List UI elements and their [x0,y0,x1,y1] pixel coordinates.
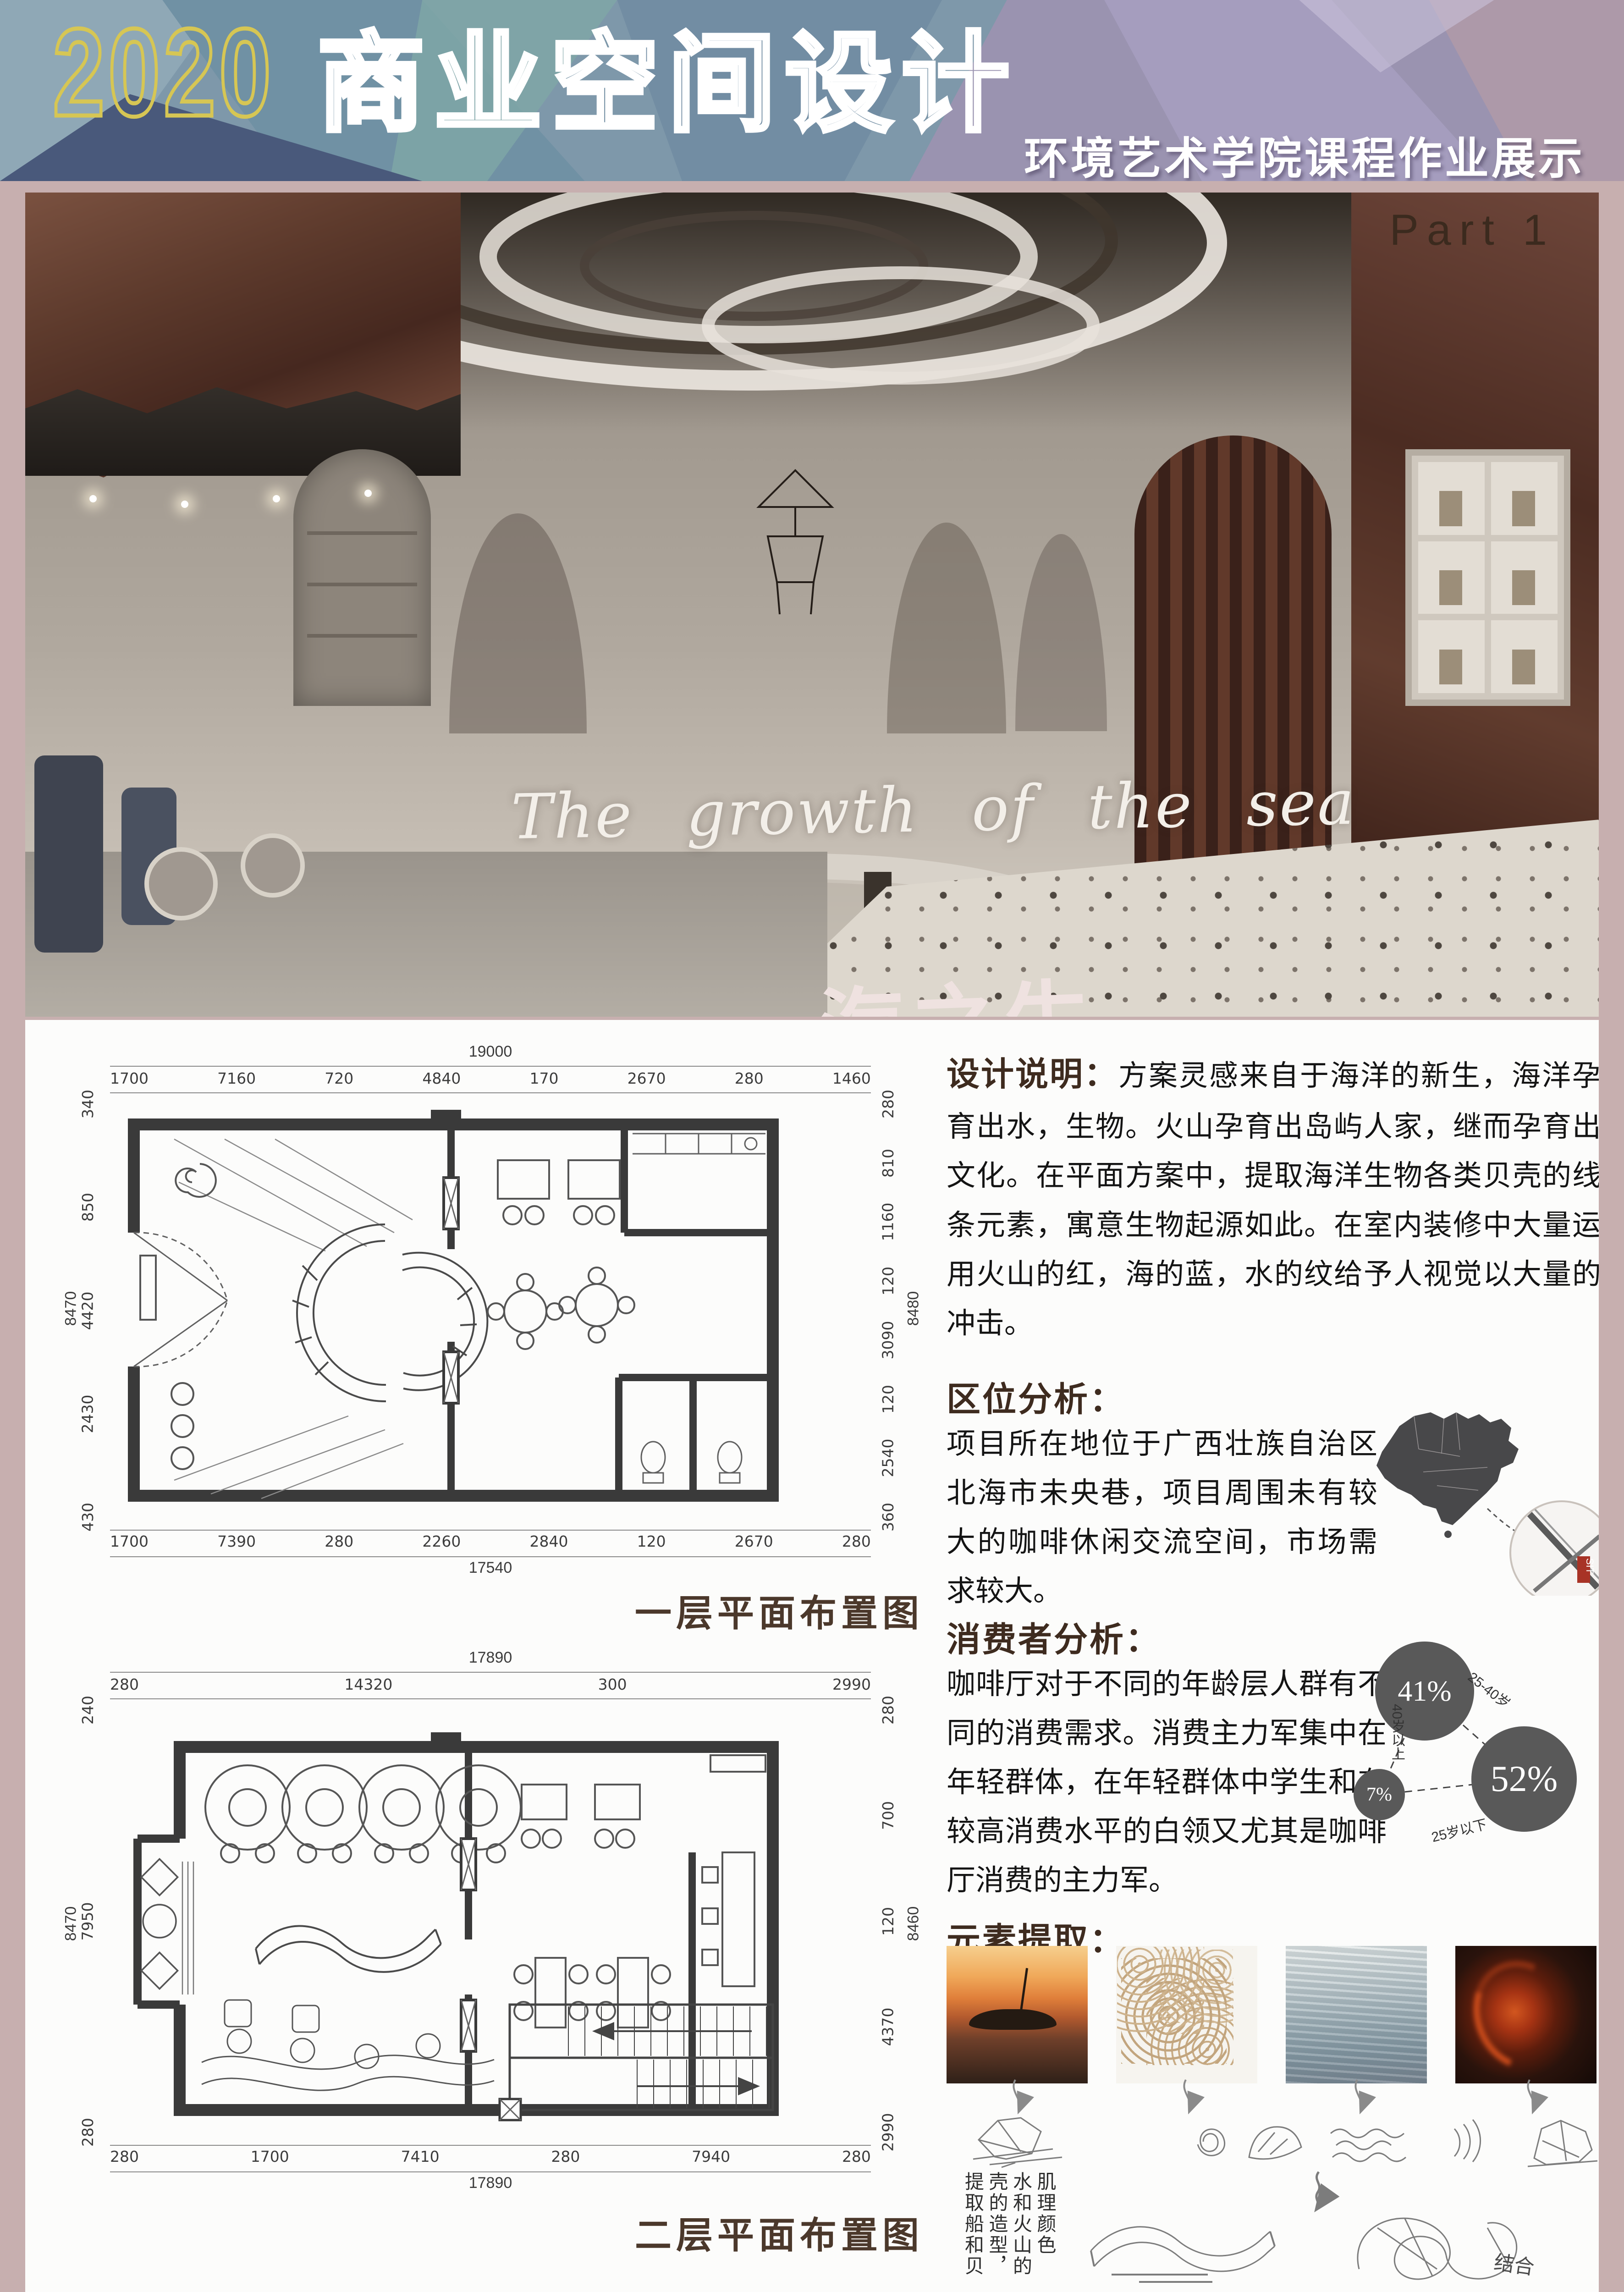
shell-spiral-sketch [1198,2129,1225,2156]
dimension-line [110,1066,871,1067]
design-description: 设计说明：方案灵感来自于海洋的新生，海洋孕育出水，生物。火山孕育出岛屿人家，继而… [947,1047,1599,1348]
wireframe-pendant-light [740,468,850,619]
consumer-analysis-title: 消费者分析： [947,1612,1161,1661]
dimension-value: 280 [735,1069,764,1087]
part-label: Part 1 [1390,205,1555,255]
cafe-table [144,847,218,920]
dimension-value: 280 [79,2118,97,2147]
dimension-total: 8470 [62,1906,80,1941]
dimension-total: 17540 [110,1559,871,1577]
dimension-value: 7950 [79,1902,97,1940]
bubble-under-25: 52% [1471,1726,1577,1832]
location-analysis-body: 项目所在地位于广西壮族自治区北海市未央巷，项目周围未有较大的咖啡休闲交流空间，市… [947,1420,1377,1616]
dimension-value: 240 [79,1696,97,1725]
dimension-value: 120 [879,1385,897,1414]
dimension-value: 280 [110,2148,139,2165]
dimension-line [110,1556,871,1557]
floor-plan-1: 19000 17007160720484017026702801460 3408… [66,1043,928,1634]
spotlight [89,495,97,502]
dimension-column: 28070012043702990 [878,1701,898,2141]
dimension-total: 8480 [905,1291,923,1326]
dimension-value: 1460 [832,1069,871,1087]
hero-render: Part 1 The growth of the sea 海之生— 新生主题咖啡… [25,193,1599,1017]
floor-plan-2-label: 二层平面布置图 [635,2206,924,2259]
dimension-row: 17007160720484017026702801460 [110,1069,871,1087]
dimension-total: 19000 [110,1043,871,1061]
floor-plan-1-drawing [110,1095,871,1526]
wall-niche-shelves [293,449,431,706]
consumer-bubble-chart: 41% 52% 7% 25-40岁 40岁以上 25岁以下 [1341,1614,1599,1875]
dimension-value: 3090 [879,1321,897,1359]
shelf-cell [1491,541,1558,614]
waves-sketch [1331,2129,1406,2161]
dimension-line [110,2171,871,2172]
dimension-total: 17890 [110,2174,871,2192]
dimension-value: 7390 [217,1532,256,1550]
dimension-value: 120 [879,1907,897,1936]
dimension-value: 280 [842,1532,871,1550]
wave-counter-sketch [1091,2227,1270,2256]
sunset-fishing-boat-photo [947,1946,1088,2083]
dimension-value: 720 [325,1069,353,1087]
dimension-value: 340 [79,1090,97,1118]
dimension-total: 8460 [905,1906,923,1941]
floor-plan-2-drawing [110,1701,871,2141]
dimension-line [110,1092,871,1093]
dimension-value: 7410 [401,2148,440,2165]
location-analysis-title: 区位分析： [947,1372,1125,1421]
dimension-line [110,2145,871,2146]
header-band: 2020 商业空间设计 环境艺术学院课程作业展示 [0,0,1624,181]
arch-opening [887,523,1006,733]
dimension-value: 810 [879,1149,897,1178]
dimension-value: 850 [79,1193,97,1222]
s-counter-sketch [1358,2218,1450,2279]
dimension-value: 1700 [110,1532,149,1550]
site-tag-text: SIT [1584,1558,1596,1574]
dimension-value: 430 [79,1503,97,1532]
dimension-row: 17007390280226028401202670280 [110,1532,871,1550]
dimension-value: 280 [325,1532,353,1550]
dimension-value: 14320 [344,1675,392,1693]
main-title: 商业空间设计 [317,22,1018,146]
dimension-value: 280 [879,1696,897,1725]
cafe-table [241,833,305,898]
dimension-value: 1700 [251,2148,289,2165]
sketch-annotation: 提取船和贝壳的造型，水和火山的肌理颜色 [960,2171,1057,2288]
dimension-value: 280 [879,1090,897,1118]
extraction-arrows [947,2078,1599,2115]
dimension-total: 8470 [62,1291,80,1326]
shelf-cell [1491,620,1558,693]
design-description-body: 方案灵感来自于海洋的新生，海洋孕育出水，生物。火山孕育出岛屿人家，继而孕育出文化… [947,1060,1599,1339]
dimension-value: 2670 [628,1069,666,1087]
combine-arrow [1316,2172,1320,2209]
year-title: 2020 [53,10,275,135]
china-map: SIT [1350,1399,1599,1596]
arch-opening [1015,534,1107,731]
dimension-value: 360 [879,1503,897,1532]
arch-opening [449,513,587,733]
dimension-line [110,1698,871,1699]
shelf-cell [1491,462,1558,535]
floor-plan-1-label: 一层平面布置图 [635,1584,924,1637]
dimension-column: 34085044202430430 [77,1095,98,1526]
bubble-over-40: 7% [1354,1769,1405,1820]
combine-note: 结合 [1492,2246,1536,2281]
seashells-photo [1116,1946,1257,2083]
rock-sketch [1528,2121,1597,2166]
dimension-value: 280 [551,2148,580,2165]
dimension-value: 2670 [735,1532,773,1550]
dimension-value: 1160 [879,1203,897,1241]
dimension-column: 2407950280 [77,1701,98,2141]
shelf-cell [1418,462,1485,535]
dimension-value: 2430 [79,1394,97,1433]
display-shelf [1405,449,1570,706]
dimension-value: 7160 [217,1069,256,1087]
dimension-value: 300 [598,1675,627,1693]
design-description-title: 设计说明： [947,1056,1118,1093]
consumer-analysis-body: 咖啡厅对于不同的年龄层人群有不同的消费需求。消费主力军集中在年轻群体，在年轻群体… [947,1660,1387,1905]
dimension-value: 2540 [879,1439,897,1477]
bubble-label-over-40: 40岁以上 [1387,1704,1407,1760]
dimension-value: 2840 [530,1532,568,1550]
dimension-value: 2990 [879,2113,897,2152]
dimension-value: 7940 [692,2148,730,2165]
dimension-value: 120 [637,1532,666,1550]
dimension-value: 120 [879,1267,897,1295]
dimension-value: 170 [530,1069,559,1087]
hainan-island [1444,1531,1452,1538]
subtitle: 环境艺术学院课程作业展示 [1024,123,1585,181]
spotlight [181,501,188,508]
water-ripples-photo [1286,1946,1427,2083]
dimension-total: 17890 [110,1649,871,1667]
booth-seat [34,755,103,953]
dimension-value: 2990 [832,1675,871,1693]
dimension-line [110,1530,871,1531]
shelf-cell [1418,620,1485,693]
dimension-column: 280810116012030901202540360 [878,1095,898,1526]
volcano-lava-photo [1455,1946,1596,2083]
dimension-value: 1700 [110,1069,149,1087]
dimension-value: 280 [110,1675,139,1693]
floor-plan-2: 17890 280143203002990 2407950280 8470 28… [66,1649,928,2249]
dimension-value: 280 [842,2148,871,2165]
element-image-row [947,1946,1599,2083]
dimension-line [110,1672,871,1673]
spotlight [364,490,372,497]
dimension-value: 4370 [879,2007,897,2046]
dimension-row: 280170074102807940280 [110,2148,871,2165]
dimension-value: 4420 [79,1291,97,1330]
dimension-value: 4840 [422,1069,461,1087]
dimension-row: 280143203002990 [110,1675,871,1693]
shelf-cell [1418,541,1485,614]
content-panel: 19000 17007160720484017026702801460 3408… [25,1020,1599,2292]
hero-title-en: The growth of the sea [511,766,1356,853]
spotlight [273,495,280,502]
dimension-value: 700 [879,1801,897,1830]
dimension-value: 2260 [422,1532,461,1550]
